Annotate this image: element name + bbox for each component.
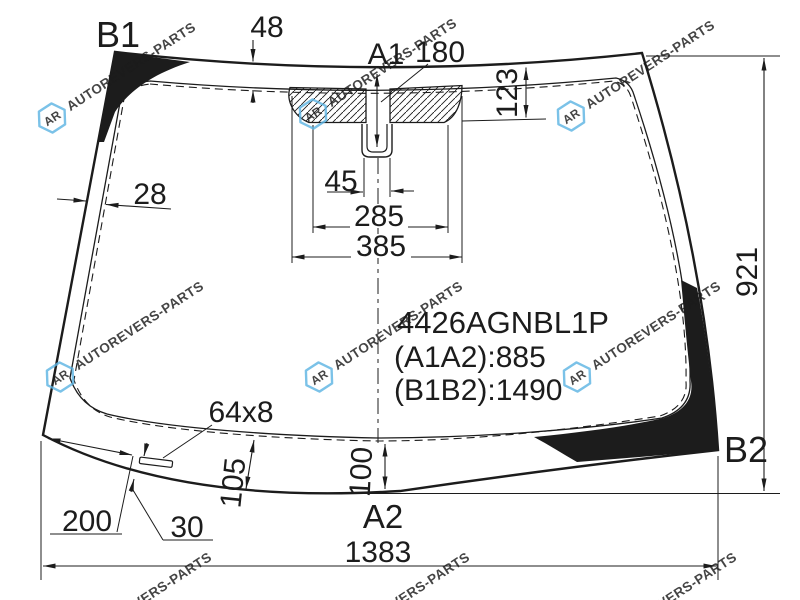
dim-105: 105 [214, 456, 252, 509]
dim-385: 385 [356, 230, 406, 263]
dim-48: 48 [250, 11, 283, 44]
dim-123: 123 [491, 68, 524, 118]
dim-28: 28 [133, 178, 166, 211]
shade-band-right [390, 86, 462, 123]
dim-45: 45 [324, 165, 357, 198]
windshield-technical-drawing: B1 B2 A1 A2 48 180 123 28 45 285 385 921… [0, 0, 800, 600]
part-a1a2: (A1A2):885 [394, 341, 546, 374]
dim-100: 100 [344, 446, 380, 498]
part-b1b2: (B1B2):1490 [394, 374, 562, 407]
label-a2: A2 [363, 498, 403, 535]
watermark: AR AUTOREVERS-PARTS [574, 545, 743, 600]
ar-logo-text: AR [41, 108, 63, 129]
windshield-diagram-page: B1 B2 A1 A2 48 180 123 28 45 285 385 921… [0, 0, 800, 600]
label-b2: B2 [724, 429, 768, 470]
dim-921: 921 [731, 247, 764, 297]
watermark-brand-text: AUTOREVERS-PARTS [80, 549, 215, 600]
watermark: AR AUTOREVERS-PARTS [49, 545, 218, 600]
dim-285: 285 [354, 200, 404, 233]
label-b1: B1 [96, 14, 140, 55]
dim-64x8: 64x8 [208, 396, 273, 429]
watermark-brand-text: AUTOREVERS-PARTS [605, 549, 740, 600]
dim-1383: 1383 [345, 536, 412, 569]
dim-30: 30 [170, 511, 203, 544]
dim-200: 200 [62, 505, 112, 538]
